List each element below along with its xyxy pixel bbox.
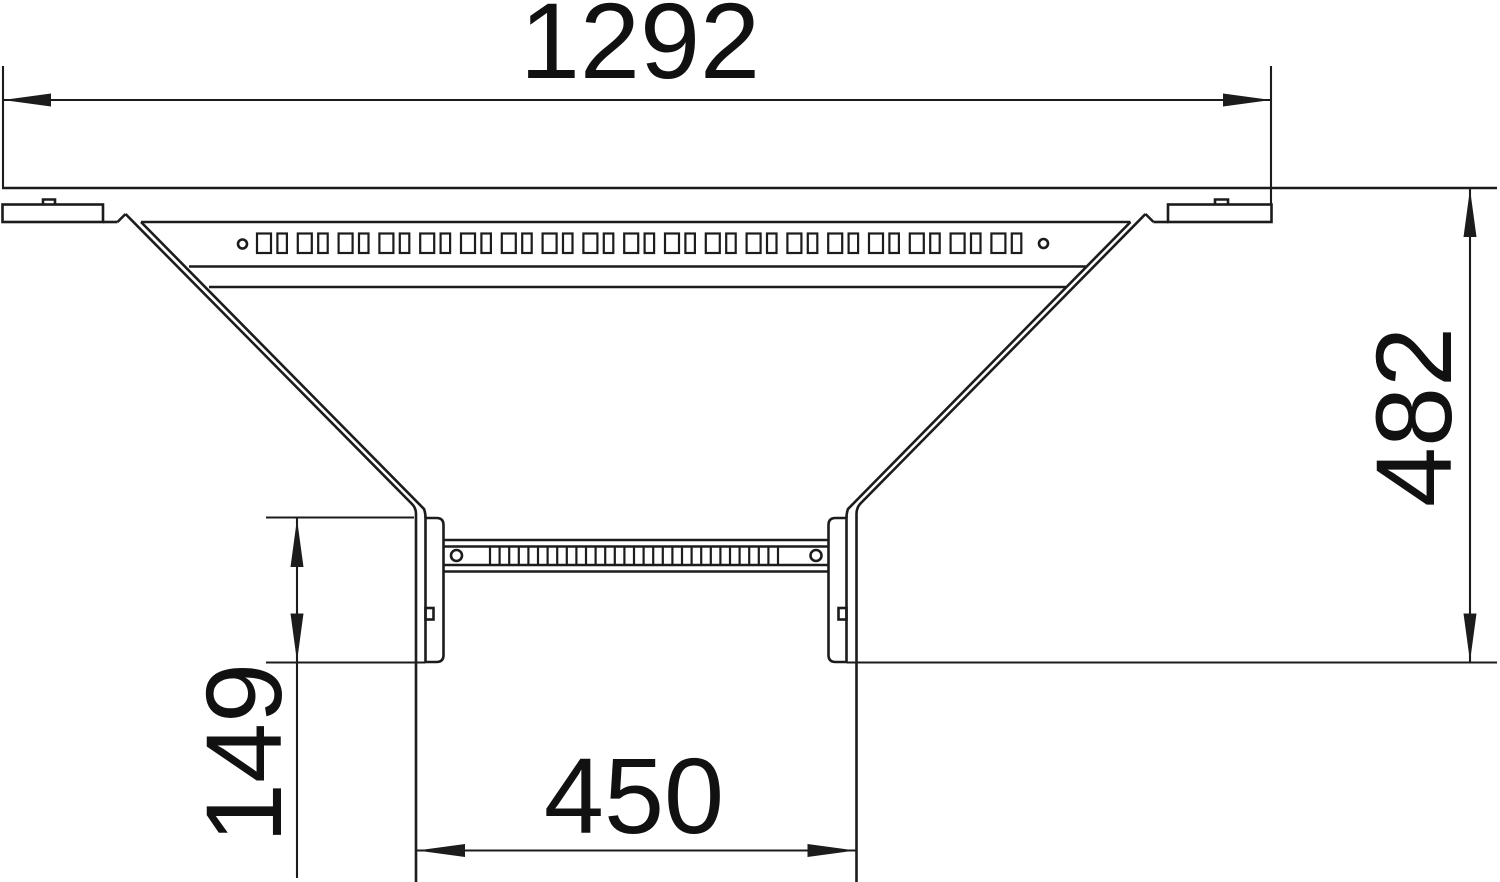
left-branch-rail-notch — [426, 608, 434, 620]
main-rail-slot — [645, 234, 655, 254]
main-rail-slot — [767, 234, 777, 254]
main-rail-slot — [583, 234, 597, 254]
right-angled-rail-outer — [857, 214, 1146, 882]
right-branch-rail-notch — [839, 608, 847, 620]
main-rail-slot — [441, 234, 451, 254]
main-rail-slot — [706, 234, 720, 254]
dim-value-right-height: 482 — [1353, 327, 1474, 507]
left-branch-rail — [426, 518, 444, 662]
right-branch-rail — [829, 518, 847, 662]
main-rail-slot — [991, 234, 1005, 254]
main-rail-slot — [543, 234, 557, 254]
main-rail-slot — [910, 234, 924, 254]
main-rail-slot — [400, 234, 410, 254]
main-rail-slot — [849, 234, 859, 254]
arrow-left-icon — [3, 94, 51, 107]
arrow-up-icon — [291, 519, 304, 567]
main-rail-slot — [930, 234, 940, 254]
arrow-down-icon — [291, 614, 304, 662]
main-rail-slot — [563, 234, 573, 254]
main-rail-slot — [298, 234, 312, 254]
main-rail-slot — [787, 234, 801, 254]
arrow-left-icon — [417, 844, 465, 857]
main-rail-slot — [318, 234, 328, 254]
dim-value-left-branch-depth: 149 — [183, 663, 304, 843]
main-rail-slot — [339, 234, 353, 254]
part-main-run — [2, 188, 1497, 287]
right-coupler-plate — [1168, 205, 1272, 223]
arrow-right-icon — [1223, 94, 1271, 107]
main-rail-slot — [522, 234, 532, 254]
main-rail-slot — [828, 234, 842, 254]
main-rail-slot — [277, 234, 287, 254]
main-rail-hole-right — [1039, 239, 1048, 248]
arrow-up-icon — [1464, 189, 1477, 237]
arrow-right-icon — [808, 844, 856, 857]
dim-right-height: 482 — [847, 188, 1498, 663]
main-rail-slot — [502, 234, 516, 254]
main-rail-slot — [624, 234, 638, 254]
dim-left-branch-depth: 149 — [183, 518, 426, 879]
main-rail-slot — [481, 234, 491, 254]
main-rail-slot — [257, 234, 271, 254]
main-rail-hole-left — [238, 240, 247, 249]
main-rail-slot — [461, 234, 475, 254]
dim-top-width: 1292 — [3, 0, 1271, 204]
part-branch-outlet — [426, 518, 847, 662]
main-rail-slot — [889, 234, 899, 254]
main-rail-slot — [808, 234, 818, 254]
dim-bottom-branch-width: 450 — [416, 735, 857, 857]
rung-hole-right — [811, 550, 822, 561]
technical-drawing-page: 1292 482 149 450 — [0, 0, 1500, 882]
main-rail-slot — [1012, 234, 1022, 254]
main-rail-slot — [869, 234, 883, 254]
main-rail-slot — [665, 234, 679, 254]
main-rail-slot — [359, 234, 369, 254]
dim-value-top-width: 1292 — [520, 0, 760, 101]
main-rail-slots — [257, 234, 1021, 254]
main-rail-slot — [971, 234, 981, 254]
main-rail-slot — [420, 234, 434, 254]
main-rail-slot — [951, 234, 965, 254]
main-rail-slot — [379, 234, 393, 254]
rung-hole-left — [451, 550, 462, 561]
arrow-down-icon — [1464, 614, 1477, 662]
flange-bevel-right — [1146, 214, 1154, 222]
main-rail-slot — [604, 234, 614, 254]
left-coupler-plate — [3, 205, 104, 223]
rung-slot-ticks — [490, 547, 778, 564]
main-rail-slot — [726, 234, 736, 254]
main-rail-slot — [747, 234, 761, 254]
dim-value-bottom-branch-width: 450 — [544, 735, 724, 856]
cable-ladder-tee-drawing: 1292 482 149 450 — [0, 0, 1500, 882]
main-rail-slot — [685, 234, 695, 254]
flange-bevel-left — [118, 214, 126, 222]
